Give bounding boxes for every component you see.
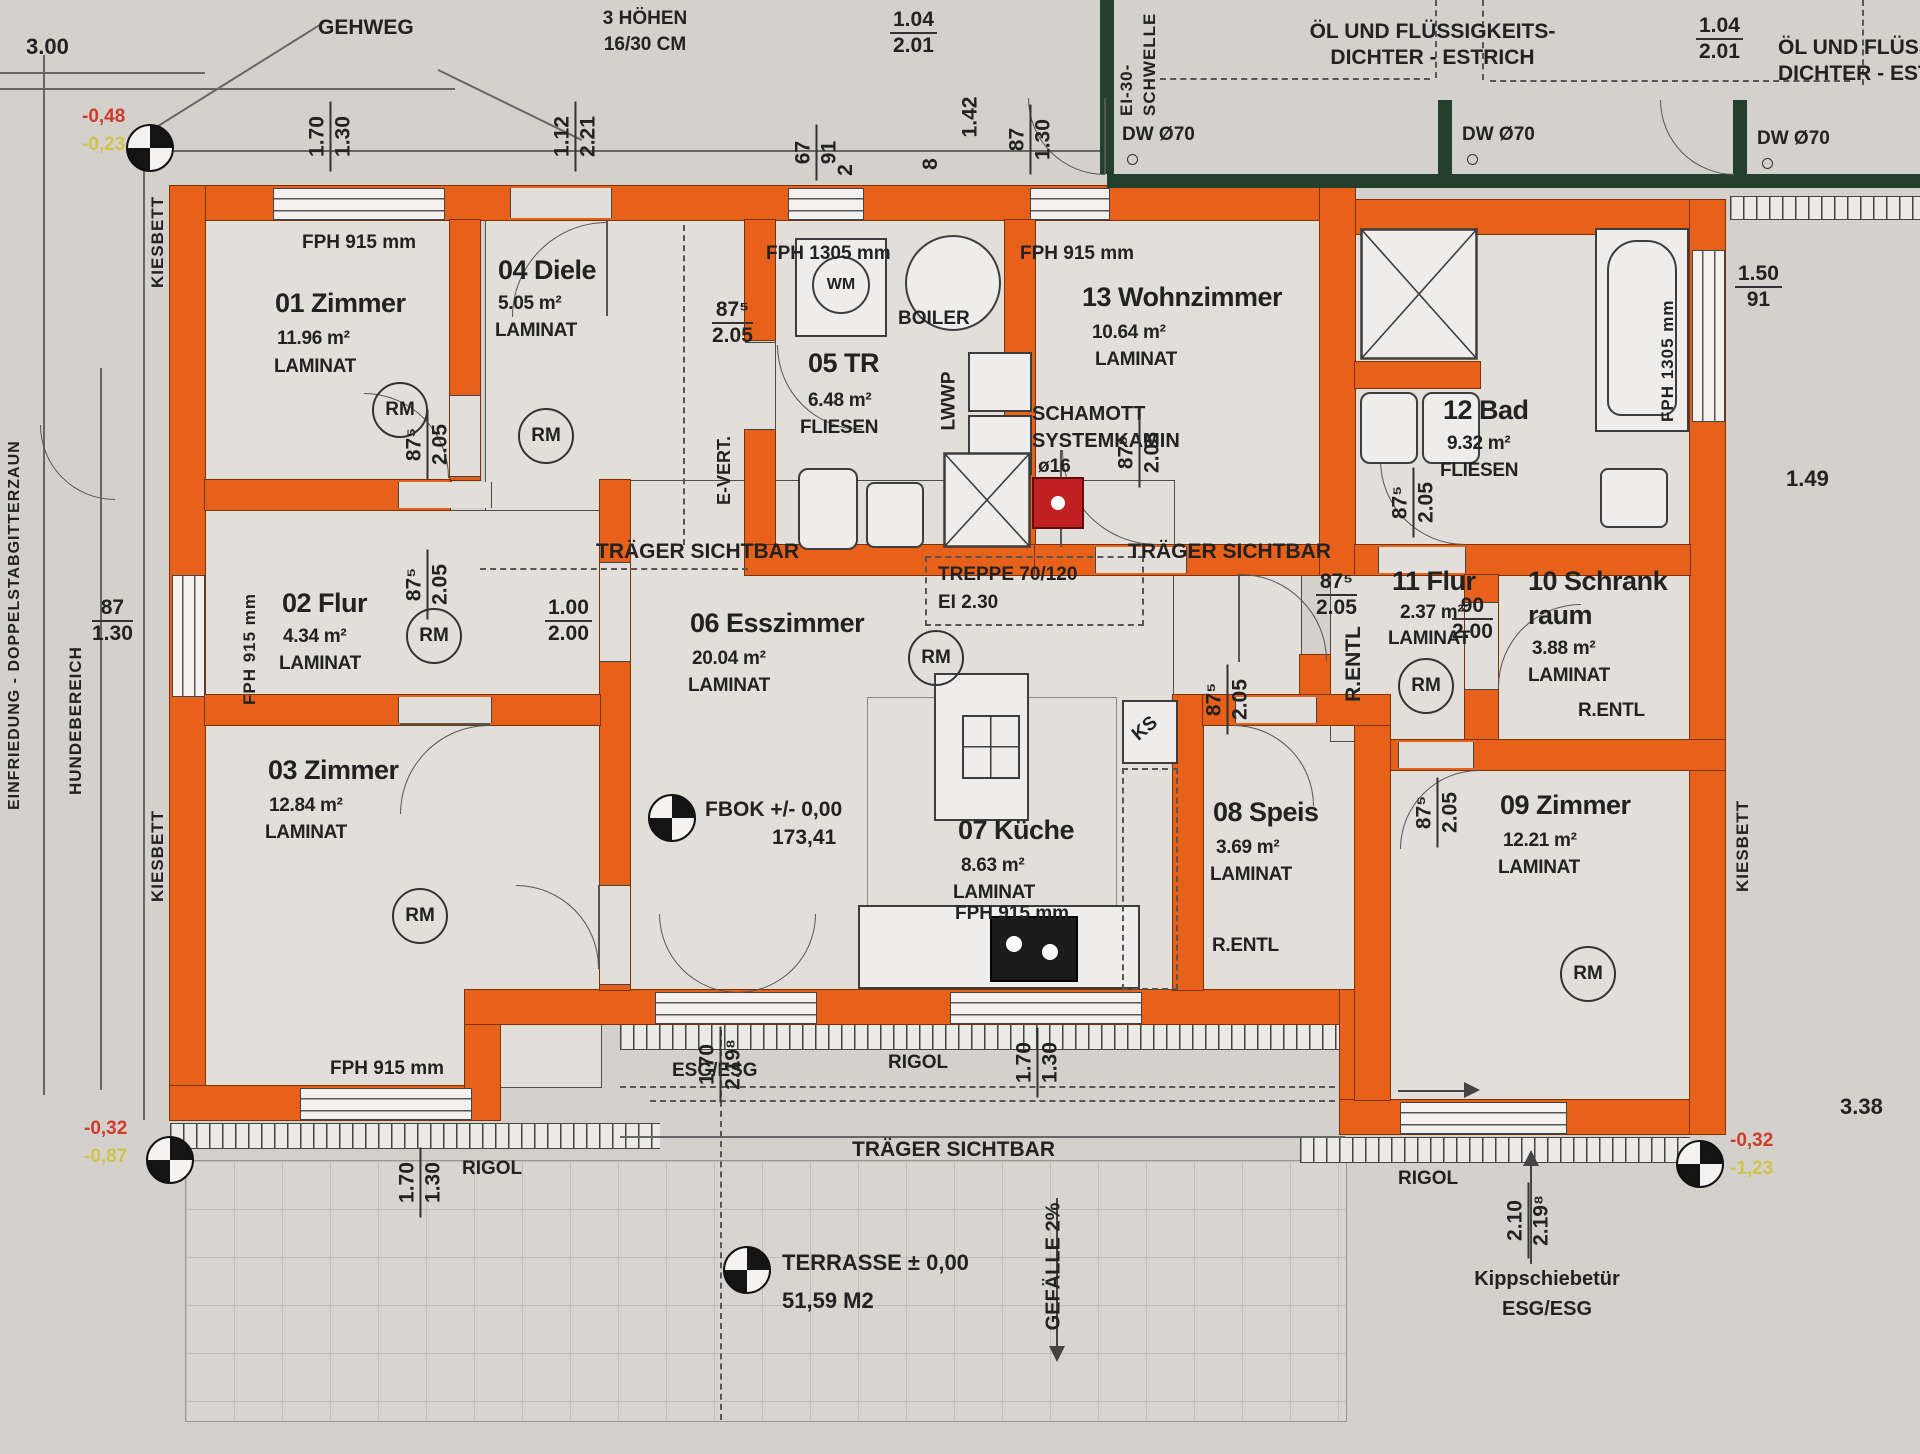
dim-300: 3.00 xyxy=(26,34,69,60)
dim-top: 87⁵ xyxy=(402,410,428,480)
carport-door-arc-2 xyxy=(1660,100,1735,175)
hoehen2-label: 16/30 CM xyxy=(580,34,710,56)
dw70-label-3: DW Ø70 xyxy=(1757,128,1830,150)
room-floor-07: LAMINAT xyxy=(953,882,1035,904)
dim-87-130-wohn: 871.30 xyxy=(1005,105,1054,175)
wall-speis-09 xyxy=(1355,695,1390,1100)
zaun-label: EINFRIEDUNG - DOPPELSTABGITTERZAUN xyxy=(6,430,24,810)
entrance-door-leaf xyxy=(606,220,608,316)
window-bad xyxy=(1692,250,1725,422)
room-title-09: 09 Zimmer xyxy=(1500,790,1631,821)
window-03 xyxy=(300,1088,472,1120)
dim-top: 87⁵ xyxy=(712,298,753,324)
hundebereich-label: HUNDEBEREICH xyxy=(66,560,86,795)
fph915-03: FPH 915 mm xyxy=(330,1058,444,1080)
dim-top: 1.70 xyxy=(1012,1028,1038,1098)
level-top-left-red: -0,48 xyxy=(82,106,125,128)
dim-line-300 xyxy=(0,72,205,74)
dim-top: 87⁵ xyxy=(1202,665,1228,735)
window-tr xyxy=(788,188,864,220)
door-leaf-flur xyxy=(1238,574,1240,662)
room-floor-09: LAMINAT xyxy=(1498,857,1580,879)
dim-875-205-flur: 87⁵2.05 xyxy=(1316,570,1357,619)
fbok-value: 173,41 xyxy=(772,826,836,850)
dim-338: 3.38 xyxy=(1840,1094,1883,1120)
dim-875-205-d4: 87⁵2.05 xyxy=(1388,468,1437,538)
dim-top: 1.70 xyxy=(695,1027,721,1103)
dim-142: 1.42 xyxy=(958,97,982,138)
rigol-label-3: RIGOL xyxy=(1398,1168,1458,1190)
dim-104-201-1: 1.042.01 xyxy=(890,8,937,57)
level-bottom-left-red: -0,32 xyxy=(84,1118,127,1140)
cooktop-burner-1 xyxy=(1006,936,1022,952)
dim-150-91: 1.5091 xyxy=(1735,262,1782,311)
dim-bottom: 2.05 xyxy=(1414,468,1438,538)
window-wohnzimmer xyxy=(1030,188,1110,220)
gehweg-label: GEHWEG xyxy=(318,16,414,40)
room-title-08: 08 Speis xyxy=(1213,797,1319,828)
oel-estrich-2a: ÖL UND FLÜSSIGKEITS- xyxy=(1778,36,1920,60)
ei30-label-a: EI-30- xyxy=(1117,4,1137,116)
dim-170-130-bl: 1.701.30 xyxy=(395,1148,444,1218)
treppe-label-1: TREPPE 70/120 xyxy=(938,564,1077,586)
tilt-slide-door xyxy=(1400,1102,1567,1134)
bad-wc-icon xyxy=(1600,468,1668,528)
traeger-label-3: TRÄGER SICHTBAR xyxy=(852,1138,1055,1162)
room-floor-01: LAMINAT xyxy=(274,356,356,378)
terrace-door xyxy=(655,992,817,1024)
gefaelle-label: GEFÄLLE 2% xyxy=(1042,1203,1065,1331)
dim-87-130: 871.30 xyxy=(92,596,133,645)
terrasse-label: TERRASSE ± 0,00 xyxy=(782,1250,969,1276)
traeger-label-2: TRÄGER SICHTBAR xyxy=(1128,540,1331,564)
bad-shower-icon xyxy=(1360,228,1478,360)
kiesbett-bottom-left: KIESBETT xyxy=(148,772,168,902)
dim-top: 87⁵ xyxy=(1114,418,1140,488)
dim-112-221: 1.122.21 xyxy=(550,102,599,172)
dim-bottom: 2.05 xyxy=(1316,596,1357,620)
room-floor-02: LAMINAT xyxy=(279,653,361,675)
esg-label-2: ESG/ESG xyxy=(1452,1298,1642,1321)
dim-8: 8 xyxy=(919,158,943,170)
rentl-schrankraum: R.ENTL xyxy=(1578,700,1645,722)
survey-point-terrasse xyxy=(723,1246,771,1294)
dim-875-205-tr: 87⁵2.05 xyxy=(712,298,753,347)
room-floor-04: LAMINAT xyxy=(495,320,577,342)
tr-shower-icon xyxy=(943,452,1031,548)
room-area-06: 20.04 m² xyxy=(692,648,766,670)
dim-170-2198-terr: 1.702.19⁸ xyxy=(695,1027,744,1103)
slide-arrow-line xyxy=(1398,1090,1466,1092)
dim-bottom: 2.05 xyxy=(428,550,452,620)
room-area-13: 10.64 m² xyxy=(1092,322,1166,344)
hoehen-label: 3 HÖHEN xyxy=(580,8,710,30)
rm-badge-03: RM xyxy=(392,888,448,944)
dim-top: 90 xyxy=(1452,594,1493,620)
dim-top: 2.10 xyxy=(1503,1183,1529,1259)
room-floor-10: LAMINAT xyxy=(1528,665,1610,687)
dim-bottom: 2.01 xyxy=(1696,40,1743,64)
room-title2-10: raum xyxy=(1528,600,1592,631)
room-area-05: 6.48 m² xyxy=(808,390,871,412)
dim-bottom: 2.05 xyxy=(1438,778,1462,848)
room-title-05: 05 TR xyxy=(808,348,879,379)
evert-label: E-VERT. xyxy=(714,436,735,505)
door-gap-01 xyxy=(450,395,480,477)
wall-wohnzimmer-bad xyxy=(1320,186,1355,575)
dim-100-200: 1.002.00 xyxy=(545,596,592,645)
room-title-02: 02 Flur xyxy=(282,588,367,619)
boundary-diagonal-2 xyxy=(136,22,323,140)
room-area-10: 3.88 m² xyxy=(1532,638,1595,660)
dim-top: 1.50 xyxy=(1735,262,1782,288)
room-area-12: 9.32 m² xyxy=(1447,433,1510,455)
gefaelle-arrow-head xyxy=(1049,1346,1065,1362)
treppe-label-2: EI 2.30 xyxy=(938,592,998,614)
lwwp-box-1 xyxy=(968,352,1032,412)
terrasse-area: 51,59 M2 xyxy=(782,1288,874,1314)
dim-875-205-d2: 87⁵2.05 xyxy=(402,550,451,620)
door-gap-09 xyxy=(1398,742,1474,768)
dim-bottom: 1.30 xyxy=(1031,105,1055,175)
dw70-label-2: DW Ø70 xyxy=(1462,124,1535,146)
rigol-label-1: RIGOL xyxy=(462,1158,522,1180)
traeger-label-1: TRÄGER SICHTBAR xyxy=(596,540,799,564)
survey-point-bottom-left xyxy=(146,1136,194,1184)
survey-point-top-left xyxy=(126,124,174,172)
dim-104-201-2: 1.042.01 xyxy=(1696,14,1743,63)
fph915-wohnzimmer: FPH 915 mm xyxy=(1020,243,1134,265)
boiler-label: BOILER xyxy=(898,308,970,330)
tr-wc-icon xyxy=(866,482,924,548)
estrich-dash-1 xyxy=(1160,78,1430,80)
kiesbett-top-left: KIESBETT xyxy=(148,166,168,288)
chimney-dot xyxy=(1051,496,1065,510)
door-arc-flur xyxy=(1240,574,1327,661)
dim-170-130-win01: 1.701.30 xyxy=(305,102,354,172)
fph1305-tr: FPH 1305 mm xyxy=(766,243,891,265)
drain-strip-right xyxy=(1300,1137,1690,1163)
rm-badge-06: RM xyxy=(908,630,964,686)
room-title-03: 03 Zimmer xyxy=(268,755,399,786)
floor-plan: WM 01 Zimmer 11.96 m² LAMINAT RM 04 Diel… xyxy=(0,0,1920,1454)
fph1305-bad: FPH 1305 mm xyxy=(1658,262,1678,422)
opening-flur-esszimmer xyxy=(600,562,630,662)
survey-point-bottom-right xyxy=(1676,1140,1724,1188)
dark-wall-carport xyxy=(1107,174,1920,188)
rm-badge-11: RM xyxy=(1398,658,1454,714)
terrace-area xyxy=(185,1160,1347,1422)
level-bottom-right-red: -0,32 xyxy=(1730,1130,1773,1152)
dim-top: 87 xyxy=(1005,105,1031,175)
dark-post-3 xyxy=(1733,100,1747,174)
cooktop-icon xyxy=(990,916,1078,982)
dim-875-205-d6: 87⁵2.05 xyxy=(1412,778,1461,848)
rigol-label-2: RIGOL xyxy=(888,1052,948,1074)
dim-top: 87⁵ xyxy=(1316,570,1357,596)
rentl-speis: R.ENTL xyxy=(1212,935,1279,957)
room-title-10: 10 Schrank xyxy=(1528,566,1667,597)
level-bottom-left-yellow: -0,87 xyxy=(84,1146,127,1168)
dim-875-205-d3: 87⁵2.05 xyxy=(1114,418,1163,488)
esg-dashed-line-2 xyxy=(650,1100,1345,1102)
lwwp-label: LWWP xyxy=(939,371,961,430)
oel-estrich-1a: ÖL UND FLÜSSIGKEITS- xyxy=(1265,20,1600,44)
site-boundary-line xyxy=(43,55,45,1095)
dim-bottom: 2.05 xyxy=(1140,418,1164,488)
dim-bottom: 1.30 xyxy=(331,102,355,172)
kiesbett-right: KIESBETT xyxy=(1733,762,1753,892)
dim-bottom: 1.30 xyxy=(421,1148,445,1218)
dw70-dot-3 xyxy=(1762,158,1773,169)
dim-bottom: 1.30 xyxy=(1038,1028,1062,1098)
room-area-01: 11.96 m² xyxy=(277,328,350,350)
room-title-06: 06 Esszimmer xyxy=(690,608,864,639)
wall-shower-stub xyxy=(1355,362,1480,388)
dim-top: 87⁵ xyxy=(1388,468,1414,538)
dim-top: 1.70 xyxy=(305,102,331,172)
dim-bottom: 2.05 xyxy=(1228,665,1252,735)
rentl-flur: R.ENTL xyxy=(1342,626,1366,702)
gravel-strip-line xyxy=(143,150,145,1120)
dim-top: 87⁵ xyxy=(402,550,428,620)
door-leaf-03b xyxy=(598,885,600,969)
traeger-dash-left xyxy=(480,568,748,570)
bad-sink-icon-1 xyxy=(1360,392,1418,464)
chimney-icon xyxy=(1032,477,1084,529)
door-gap-03 xyxy=(398,697,492,723)
room-floor-13: LAMINAT xyxy=(1095,349,1177,371)
dim-top: 1.04 xyxy=(1696,14,1743,40)
dim-top: 1.04 xyxy=(890,8,937,34)
wall-diele-tr-lower xyxy=(745,430,775,545)
room-floor-12: FLIESEN xyxy=(1440,460,1518,482)
dim-bottom: 2.05 xyxy=(712,324,753,348)
door-gap-01b xyxy=(398,482,492,508)
rm-badge-04: RM xyxy=(518,408,574,464)
dim-149: 1.49 xyxy=(1786,466,1829,492)
dim-bottom: 2.19⁸ xyxy=(721,1027,745,1103)
wm-label: WM xyxy=(827,276,855,294)
slide-arrow-head xyxy=(1464,1082,1480,1098)
ei30-label-b: SCHWELLE xyxy=(1140,4,1160,116)
window-kueche xyxy=(950,992,1142,1024)
dim-top: 1.70 xyxy=(395,1148,421,1218)
room-title-11: 11 Flur xyxy=(1392,566,1476,597)
o16-label: ø16 xyxy=(1038,456,1071,478)
dim-2: 2 xyxy=(834,164,858,176)
room-title-12: 12 Bad xyxy=(1443,395,1529,426)
room-floor-03: LAMINAT xyxy=(265,822,347,844)
dim-bottom: 91 xyxy=(1735,288,1782,312)
drain-strip-top-right xyxy=(1730,196,1920,220)
tr-sink-icon xyxy=(798,468,858,550)
room-title-13: 13 Wohnzimmer xyxy=(1082,282,1282,313)
fph915-kueche: FPH 915 mm xyxy=(955,903,1069,925)
dim-top: 1.00 xyxy=(545,596,592,622)
kipp-label: Kippschiebetür xyxy=(1452,1268,1642,1291)
level-top-left-yellow: -0,23 xyxy=(82,134,125,156)
dim-170-130-kueche: 1.701.30 xyxy=(1012,1028,1061,1098)
room-area-04: 5.05 m² xyxy=(498,293,561,315)
room-floor-08: LAMINAT xyxy=(1210,864,1292,886)
dim-top: 1.12 xyxy=(550,102,576,172)
room-title-07: 07 Küche xyxy=(958,815,1074,846)
dim-875-205-d5: 87⁵2.05 xyxy=(1202,665,1251,735)
door-leaf-03 xyxy=(400,723,490,725)
kitchen-cabinet-column xyxy=(1122,768,1178,990)
room-title-01: 01 Zimmer xyxy=(275,288,406,319)
dim-875-205-d1: 87⁵2.05 xyxy=(402,410,451,480)
room-area-09: 12.21 m² xyxy=(1503,830,1577,852)
fph915-02: FPH 915 mm xyxy=(240,570,260,705)
door-gap-03b xyxy=(600,885,630,985)
fph915-01: FPH 915 mm xyxy=(302,232,416,254)
dim-bottom: 2.00 xyxy=(1452,620,1493,644)
window-02-flur xyxy=(172,575,205,697)
room-floor-06: LAMINAT xyxy=(688,675,770,697)
dw70-dot-1 xyxy=(1127,154,1138,165)
fbok-label: FBOK +/- 0,00 xyxy=(705,798,842,822)
dim-bottom: 2.05 xyxy=(428,410,452,480)
cooktop-burner-2 xyxy=(1042,944,1058,960)
carport-door-leaf-1 xyxy=(1104,98,1106,174)
room-floor-05: FLIESEN xyxy=(800,417,878,439)
dim-top: 87⁵ xyxy=(1412,778,1438,848)
room-area-07: 8.63 m² xyxy=(961,855,1024,877)
room-area-02: 4.34 m² xyxy=(283,626,346,648)
drain-strip-left xyxy=(170,1123,660,1149)
kipp-arrow-head xyxy=(1523,1150,1539,1166)
dim-top: 67 xyxy=(791,125,817,181)
dim-bottom: 2.21 xyxy=(576,102,600,172)
kitchen-sink-icon xyxy=(962,715,1020,779)
dw70-label-1: DW Ø70 xyxy=(1122,124,1195,146)
window-01 xyxy=(273,188,445,220)
dw70-dot-2 xyxy=(1467,154,1478,165)
survey-point-fbok xyxy=(648,794,696,842)
dim-bottom: 2.01 xyxy=(890,34,937,58)
oel-estrich-1b: DICHTER - ESTRICH xyxy=(1265,46,1600,70)
dark-post-2 xyxy=(1438,100,1452,174)
dim-bottom: 1.30 xyxy=(92,622,133,646)
fence-gate-arc xyxy=(40,425,115,500)
entrance-door-gap xyxy=(510,188,612,218)
sidewalk-line xyxy=(0,88,455,90)
room-area-08: 3.69 m² xyxy=(1216,837,1279,859)
room-title-04: 04 Diele xyxy=(498,255,596,286)
door-gap-tr xyxy=(745,342,775,430)
level-bottom-right-yellow: -1,23 xyxy=(1730,1158,1773,1180)
rm-badge-09: RM xyxy=(1560,946,1616,1002)
wall-exterior-bottom-middle xyxy=(465,990,1370,1024)
dim-210-2198: 2.102.19⁸ xyxy=(1503,1183,1552,1259)
dim-90-200: 902.00 xyxy=(1452,594,1493,643)
dim-bottom: 2.19⁸ xyxy=(1529,1183,1553,1259)
diele-center-dash xyxy=(683,225,685,545)
dim-bottom: 2.00 xyxy=(545,622,592,646)
room-area-03: 12.84 m² xyxy=(269,795,343,817)
dim-top: 87 xyxy=(92,596,133,622)
oel-estrich-2b: DICHTER - ESTRICH xyxy=(1778,62,1920,86)
